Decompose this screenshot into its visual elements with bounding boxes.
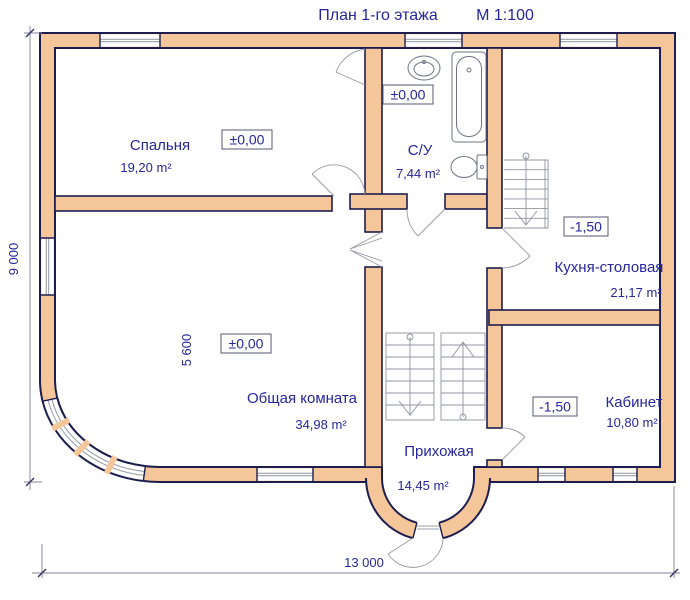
- room-area-bedroom: 19,20 m²: [120, 160, 172, 175]
- entrance-door-swing: [388, 538, 443, 567]
- elevation-mark-bedroom: ±0,00: [222, 130, 272, 149]
- elevation-mark-bathroom: ±0,00: [383, 85, 433, 104]
- wall-bathroom-bottom-right: [445, 194, 487, 209]
- kitchen-staircase-symbol: [504, 153, 548, 228]
- hall-staircases: [386, 333, 485, 420]
- elevation-mark-kitchen: -1,50: [564, 217, 608, 236]
- bathtub-symbol: [452, 52, 486, 142]
- bathroom-door-swing: [407, 209, 445, 236]
- room-name-kitchen: Кухня-столовая: [555, 259, 664, 276]
- dimension-width-total: 13 000: [344, 555, 384, 570]
- room-area-bathroom: 7,44 m²: [396, 166, 441, 181]
- window-bedroom: [100, 34, 160, 47]
- dimension-bottom: 13 000: [32, 486, 680, 578]
- wall-bathroom-kitchen: [487, 48, 502, 228]
- bay-windows: [43, 398, 146, 481]
- window-study-1: [538, 468, 565, 481]
- room-area-hall: 14,45 m²: [397, 478, 449, 493]
- dimension-left: 9 000: [6, 26, 42, 490]
- hall-staircase-down-symbol: [386, 333, 434, 420]
- entrance-opening: [413, 523, 443, 539]
- sink-symbol: [408, 56, 440, 80]
- hall-staircase-up-symbol: [441, 333, 485, 420]
- bedroom-door-swing: [312, 165, 365, 196]
- drawing-scale: М 1:100: [476, 7, 534, 24]
- wall-bathroom-bottom-left: [350, 194, 407, 209]
- wall-kitchen-study: [489, 310, 660, 325]
- wall-living-hall: [365, 267, 382, 467]
- room-area-kitchen: 21,17 m²: [610, 285, 662, 300]
- page-title: План 1-го этажа: [318, 7, 438, 24]
- wall-hall-kitchen: [487, 268, 502, 428]
- room-name-living: Общая комната: [247, 390, 358, 407]
- dimension-living-width-value: 5 600: [179, 334, 194, 367]
- room-name-bathroom: С/У: [408, 142, 433, 159]
- elevation-value-kitchen: -1,50: [570, 219, 602, 235]
- window-living-left: [41, 238, 54, 295]
- drawing-title: План 1-го этажа М 1:100: [318, 7, 534, 24]
- room-area-living: 34,98 m²: [295, 417, 347, 432]
- room-name-study: Кабинет: [605, 394, 662, 411]
- window-living-bottom: [257, 468, 313, 481]
- room-area-study: 10,80 m²: [606, 415, 658, 430]
- window-kitchen: [560, 34, 617, 47]
- room-name-bedroom: Спальня: [130, 137, 190, 154]
- study-door-swing: [502, 428, 525, 460]
- elevation-value-living: ±0,00: [229, 336, 264, 352]
- bathroom-fixtures: [408, 52, 487, 179]
- dimension-height-total: 9 000: [6, 243, 21, 276]
- elevation-mark-living: ±0,00: [221, 334, 271, 353]
- wall-bedroom-bottom: [55, 196, 332, 211]
- window-bathroom: [405, 34, 462, 47]
- elevation-value-bedroom: ±0,00: [230, 132, 265, 148]
- bedroom-small-door-swing: [336, 49, 365, 85]
- elevation-mark-study: -1,50: [533, 397, 577, 416]
- wall-hall-study-stub: [487, 460, 502, 467]
- elevation-marks: ±0,00 ±0,00 ±0,00 -1,50 -1,50: [221, 85, 608, 416]
- living-double-door-swing: [350, 232, 382, 267]
- floor-plan-canvas: План 1-го этажа М 1:100: [0, 0, 690, 600]
- window-study-2: [613, 468, 637, 481]
- dimension-living-width: 5 600: [179, 334, 194, 367]
- elevation-value-bathroom: ±0,00: [391, 87, 426, 103]
- elevation-value-study: -1,50: [539, 399, 571, 415]
- toilet-symbol: [451, 155, 487, 179]
- room-name-hall: Прихожая: [404, 443, 474, 460]
- kitchen-door-swing: [502, 228, 530, 268]
